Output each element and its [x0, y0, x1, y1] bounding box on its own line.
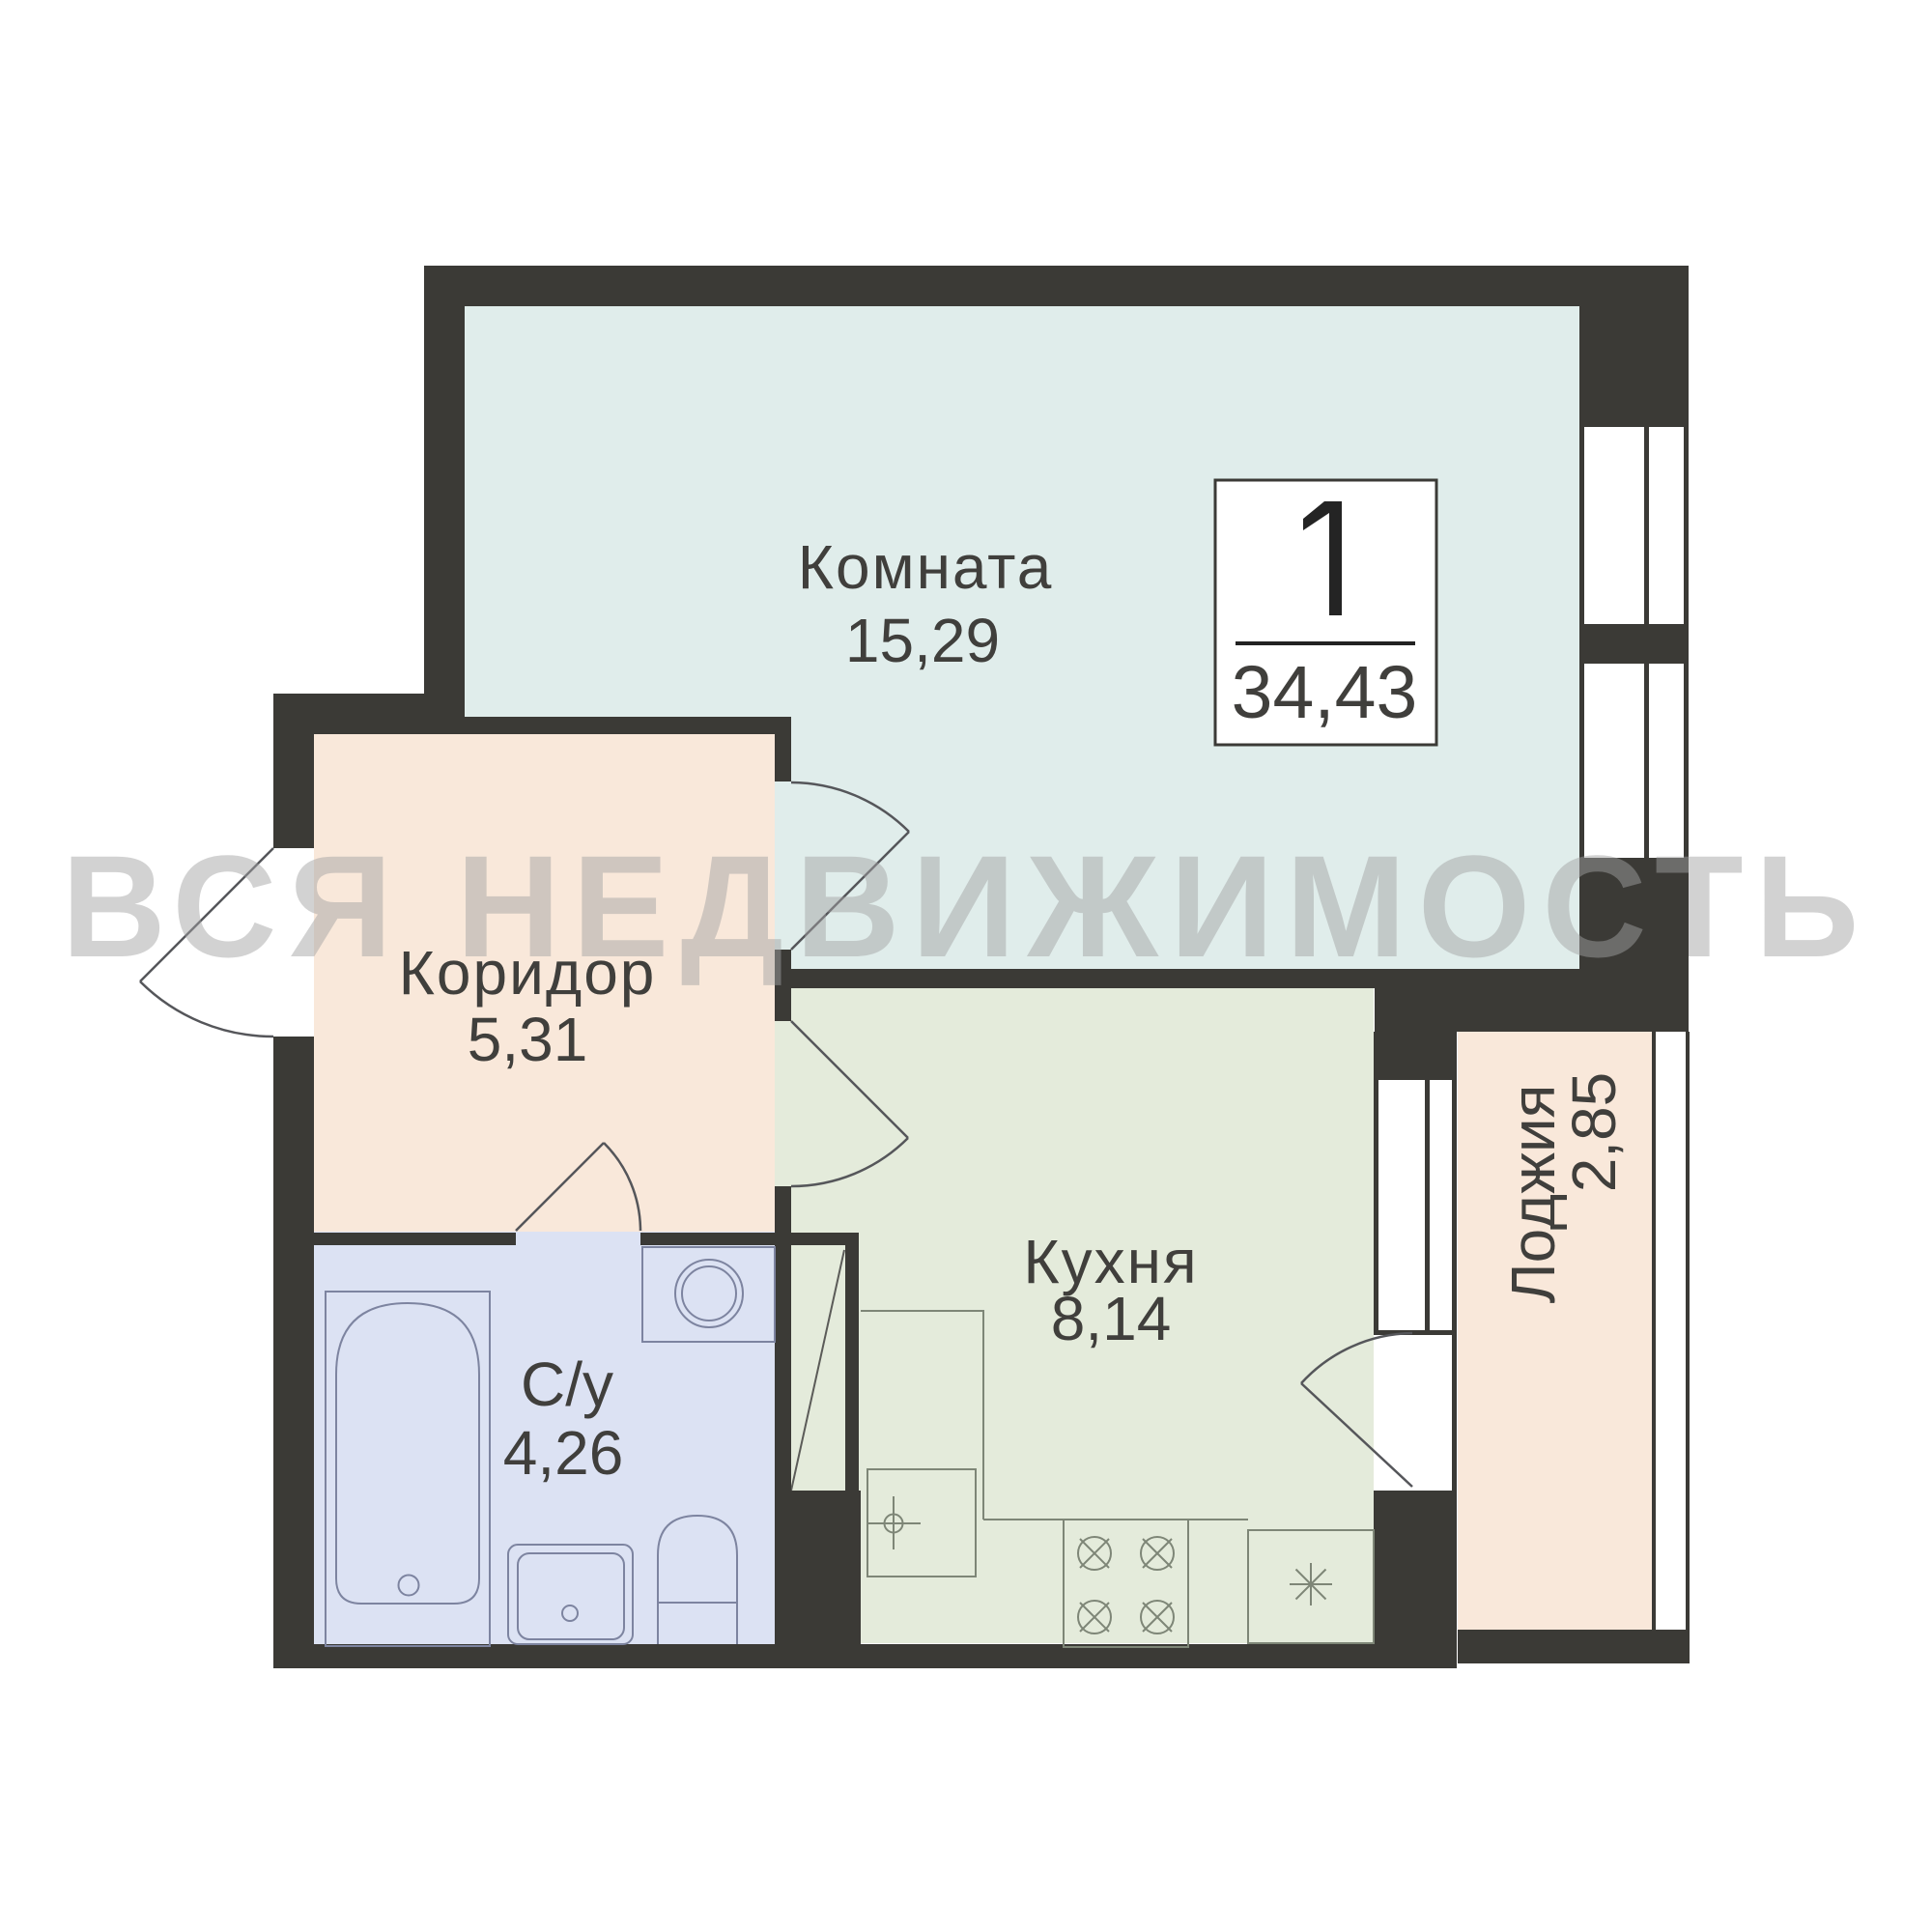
svg-text:15,29: 15,29 — [845, 606, 1000, 675]
svg-text:5,31: 5,31 — [468, 1005, 588, 1074]
svg-text:Комната: Комната — [798, 532, 1054, 602]
svg-text:34,43: 34,43 — [1232, 651, 1418, 734]
svg-text:Лоджия: Лоджия — [1498, 1085, 1568, 1304]
svg-text:ВСЯ НЕДВИЖИМОСТЬ: ВСЯ НЕДВИЖИМОСТЬ — [62, 825, 1871, 987]
svg-text:4,26: 4,26 — [503, 1418, 624, 1488]
svg-text:2,85: 2,85 — [1559, 1072, 1629, 1193]
svg-text:С/у: С/у — [521, 1350, 613, 1419]
svg-text:8,14: 8,14 — [1051, 1284, 1172, 1353]
